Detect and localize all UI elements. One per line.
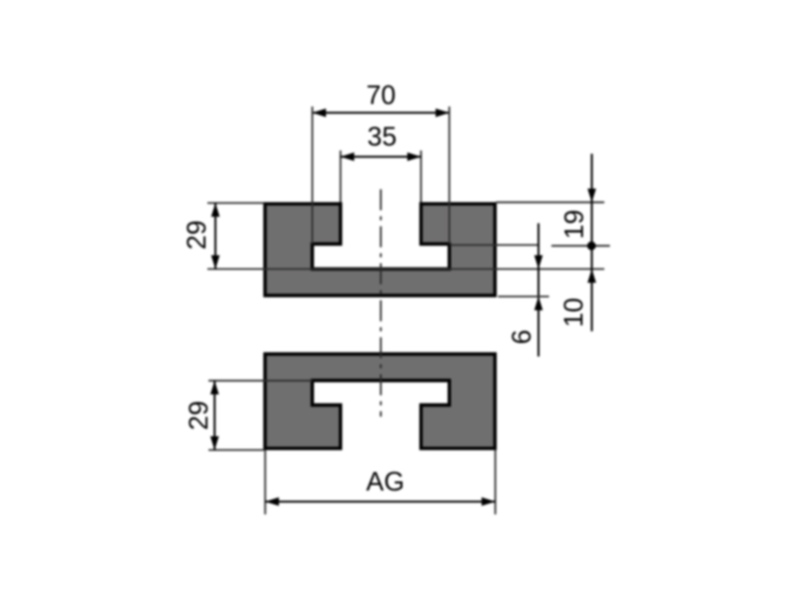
svg-text:29: 29 [182, 220, 212, 249]
svg-text:35: 35 [367, 122, 396, 152]
svg-text:AG: AG [366, 467, 404, 497]
svg-text:70: 70 [366, 80, 395, 110]
svg-text:6: 6 [507, 330, 537, 345]
svg-text:19: 19 [559, 210, 589, 239]
svg-text:29: 29 [184, 401, 214, 430]
svg-text:10: 10 [559, 298, 589, 327]
